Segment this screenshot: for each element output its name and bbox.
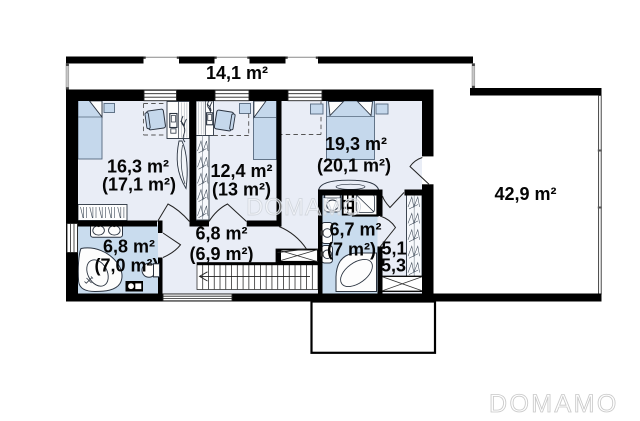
svg-text:DOMAMO: DOMAMO: [489, 390, 619, 418]
svg-text:6,7 m²: 6,7 m²: [329, 219, 381, 239]
svg-text:(20,1 m²): (20,1 m²): [317, 155, 391, 175]
svg-text:(6,9 m²): (6,9 m²): [189, 244, 253, 264]
svg-text:(7 m²): (7 m²): [327, 239, 376, 259]
svg-text:42,9 m²: 42,9 m²: [494, 184, 556, 204]
svg-text:DOMAMO: DOMAMO: [246, 194, 363, 221]
svg-text:16,3 m²: 16,3 m²: [107, 156, 169, 176]
svg-text:12,4 m²: 12,4 m²: [210, 161, 272, 181]
svg-text:6,8 m²: 6,8 m²: [103, 236, 155, 256]
svg-text:(7,0 m²): (7,0 m²): [94, 255, 158, 275]
svg-text:(17,1 m²): (17,1 m²): [102, 174, 176, 194]
svg-text:19,3 m²: 19,3 m²: [325, 134, 387, 154]
svg-text:14,1 m²: 14,1 m²: [206, 63, 268, 83]
svg-text:5,3: 5,3: [381, 255, 406, 275]
